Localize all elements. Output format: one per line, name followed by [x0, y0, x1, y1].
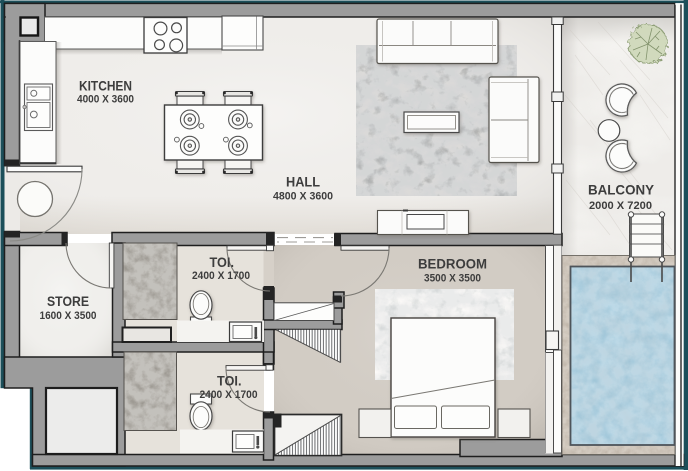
svg-text:BEDROOM: BEDROOM	[418, 257, 487, 272]
svg-text:2400 X 1700: 2400 X 1700	[200, 389, 258, 401]
svg-text:BALCONY: BALCONY	[588, 183, 654, 198]
svg-text:1600 X 3500: 1600 X 3500	[40, 310, 97, 322]
svg-text:TOI.: TOI.	[217, 373, 242, 388]
svg-text:3500 X 3500: 3500 X 3500	[424, 273, 481, 285]
svg-text:STORE: STORE	[47, 294, 89, 309]
svg-text:4000 X 3600: 4000 X 3600	[77, 94, 134, 106]
svg-text:2400 X 1700: 2400 X 1700	[192, 270, 250, 282]
svg-text:4800 X 3600: 4800 X 3600	[273, 191, 333, 203]
svg-text:HALL: HALL	[286, 174, 320, 189]
svg-text:TOI.: TOI.	[210, 255, 235, 270]
svg-text:2000 X 7200: 2000 X 7200	[589, 200, 652, 212]
svg-text:KITCHEN: KITCHEN	[79, 79, 132, 94]
